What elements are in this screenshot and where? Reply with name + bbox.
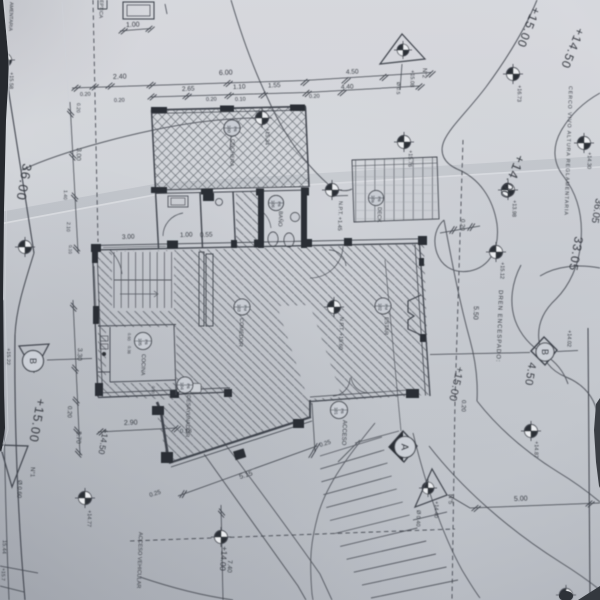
- svg-text:N°1: N°1: [29, 467, 35, 478]
- svg-text:+14.02: +14.02: [565, 330, 572, 347]
- svg-text:7.40: 7.40: [226, 560, 233, 573]
- svg-text:+15.22: +15.22: [4, 348, 11, 365]
- svg-text:5.00: 5.00: [514, 496, 528, 503]
- svg-text:PB: PB: [340, 408, 345, 414]
- svg-text:0.20: 0.20: [114, 98, 125, 104]
- svg-text:+14.87: +14.87: [532, 441, 539, 458]
- svg-text:10a: 10a: [371, 195, 376, 203]
- svg-text:PB: PB: [277, 201, 282, 207]
- svg-text:105: 105: [138, 338, 143, 346]
- svg-text:0.20: 0.20: [309, 94, 320, 100]
- svg-text:0.38: 0.38: [127, 346, 132, 355]
- svg-text:2.70: 2.70: [75, 431, 82, 444]
- svg-text:0.20: 0.20: [206, 97, 217, 103]
- svg-text:102: 102: [378, 303, 383, 311]
- svg-text:A: A: [399, 444, 410, 451]
- svg-text:3.00: 3.00: [75, 148, 82, 161]
- svg-text:ESTAR: ESTAR: [382, 317, 389, 335]
- svg-text:BAÑO: BAÑO: [276, 211, 284, 228]
- svg-text:Ø 0.60: Ø 0.60: [15, 480, 22, 499]
- svg-text:+14.40: +14.40: [432, 501, 439, 518]
- svg-text:+13.98: +13.98: [510, 200, 517, 217]
- svg-text:N.P.T. +1.45: N.P.T. +1.45: [336, 201, 343, 231]
- svg-text:+15.12: +15.12: [498, 262, 505, 279]
- svg-text:+14.30: +14.30: [585, 152, 592, 169]
- svg-text:2.10: 2.10: [65, 222, 71, 232]
- svg-text:0.20: 0.20: [75, 103, 81, 113]
- svg-text:COMEDOR: COMEDOR: [237, 318, 244, 347]
- svg-text:N°5: N°5: [447, 494, 453, 505]
- svg-text:PM: PM: [243, 305, 248, 311]
- svg-text:COCHERA: COCHERA: [228, 139, 235, 167]
- svg-text:0.90: 0.90: [151, 386, 156, 395]
- svg-text:2.90: 2.90: [124, 420, 138, 427]
- svg-text:0.55: 0.55: [200, 232, 213, 239]
- svg-text:5.50: 5.50: [472, 306, 479, 320]
- svg-text:0.20: 0.20: [66, 406, 72, 419]
- svg-text:101: 101: [334, 407, 339, 415]
- svg-text:1.00: 1.00: [126, 22, 140, 29]
- svg-text:PB: PB: [144, 339, 149, 345]
- svg-text:N.P.T. +15.60: N.P.T. +15.60: [337, 317, 344, 350]
- svg-text:COCINA: COCINA: [139, 354, 146, 376]
- svg-text:B: B: [28, 358, 38, 364]
- svg-text:0.20: 0.20: [80, 92, 91, 98]
- svg-text:103: 103: [237, 304, 242, 312]
- svg-text:3.00: 3.00: [122, 234, 135, 241]
- svg-text:3.30: 3.30: [76, 348, 83, 361]
- svg-text:+14.77: +14.77: [85, 510, 92, 527]
- svg-text:0.60: 0.60: [127, 333, 132, 342]
- svg-text:2.40: 2.40: [113, 74, 127, 81]
- svg-text:ACCESO: ACCESO: [340, 420, 347, 446]
- svg-text:100: 100: [227, 125, 232, 133]
- svg-text:15.44: 15.44: [1, 540, 7, 554]
- svg-text:PB: PB: [377, 196, 382, 202]
- svg-text:0.20: 0.20: [459, 219, 465, 232]
- svg-text:0.10: 0.10: [235, 97, 246, 103]
- svg-text:4.40: 4.40: [341, 84, 354, 91]
- svg-text:0.20: 0.20: [460, 400, 466, 413]
- svg-text:AMENTARIA: AMENTARIA: [7, 2, 14, 32]
- svg-text:+15.7: +15.7: [0, 568, 6, 581]
- svg-text:2.65: 2.65: [182, 86, 195, 93]
- svg-text:PM: PM: [384, 304, 389, 310]
- svg-text:B: B: [540, 349, 550, 355]
- svg-text:4.50: 4.50: [346, 69, 359, 76]
- svg-text:106: 106: [271, 200, 276, 208]
- svg-text:6.00: 6.00: [219, 70, 233, 77]
- svg-text:0.10: 0.10: [68, 245, 73, 254]
- svg-text:104: 104: [180, 382, 185, 390]
- svg-text:N°2: N°2: [421, 68, 427, 79]
- svg-text:+15.76: +15.76: [406, 150, 413, 167]
- svg-text:EPTICA: EPTICA: [97, 0, 104, 19]
- svg-text:+16.73: +16.73: [515, 85, 522, 102]
- svg-text:DECK: DECK: [375, 207, 382, 223]
- svg-text:PB: PB: [233, 126, 238, 132]
- svg-text:1.10: 1.10: [233, 84, 246, 91]
- svg-text:Ø 0.40: Ø 0.40: [414, 510, 421, 527]
- svg-text:1.55: 1.55: [268, 82, 281, 89]
- svg-text:Ø 0.5: Ø 0.5: [395, 82, 401, 95]
- svg-text:+15.34: +15.34: [263, 128, 270, 145]
- svg-text:1.00: 1.00: [180, 232, 193, 239]
- svg-text:PB: PB: [186, 383, 191, 389]
- svg-text:+15.08: +15.08: [408, 70, 415, 87]
- svg-text:1.40: 1.40: [62, 190, 68, 200]
